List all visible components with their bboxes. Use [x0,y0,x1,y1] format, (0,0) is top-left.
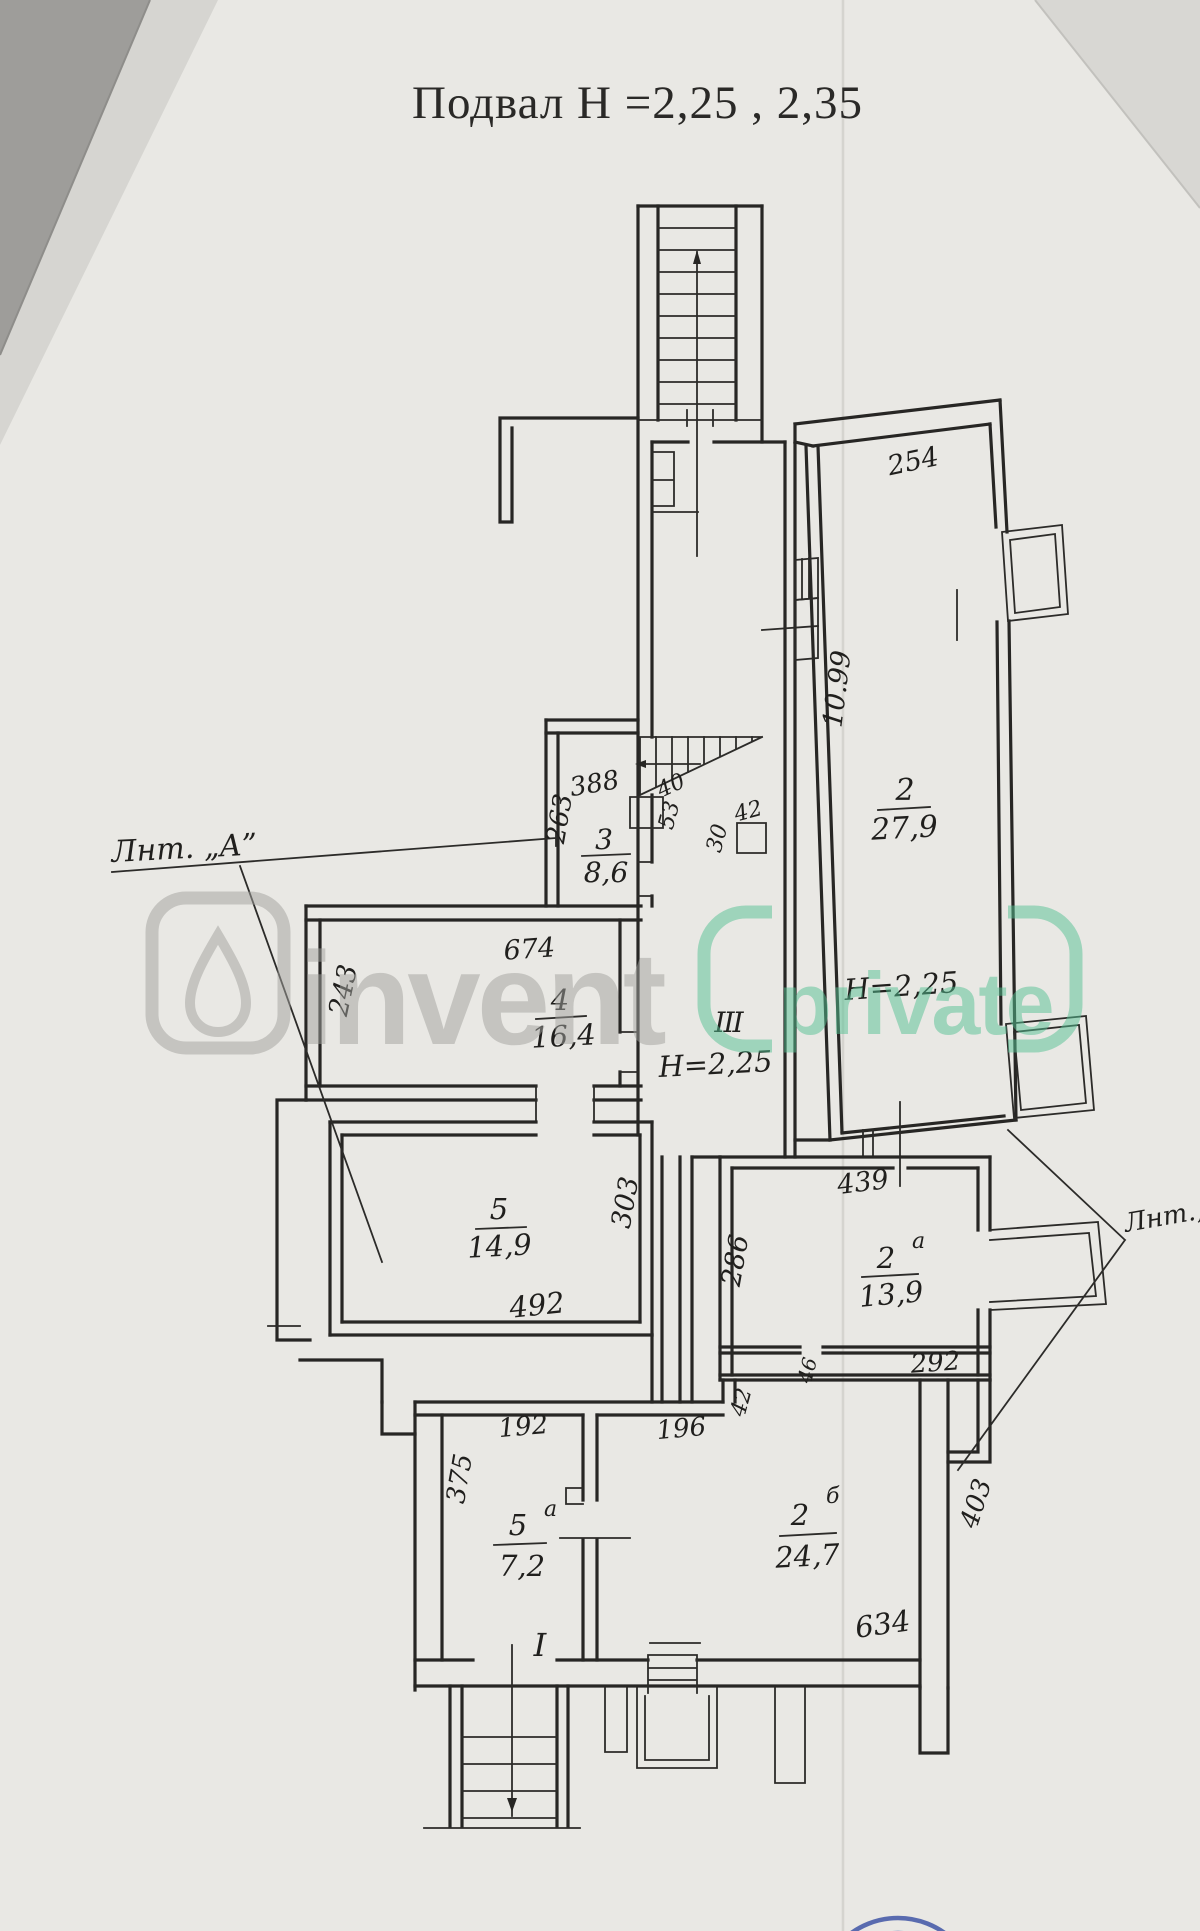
room2a-dim-top: 439 [835,1164,891,1201]
room5-dim-bottom: 492 [507,1285,567,1325]
room2b-suffix: б [826,1484,840,1509]
room2-area: 27,9 [869,809,939,848]
room2a-dim-bottom: 292 [909,1346,962,1379]
watermark-suffix: private [778,954,1053,1053]
floor-plan: Подвал Н =2,25 , 2,35 [0,0,1200,1931]
room2a-number: 2 [876,1241,895,1275]
scanned-floorplan-photo: Подвал Н =2,25 , 2,35 [0,0,1200,1931]
room2b-number: 2 [790,1498,809,1532]
room2a-suffix: а [912,1229,925,1254]
room2b-dim-top: 196 [655,1412,707,1446]
watermark-brand: invent [298,925,666,1072]
room5-area: 14,9 [466,1227,532,1264]
room5a-entry-mark: I [533,1626,548,1664]
room2-number: 2 [894,773,914,808]
room5a-suffix: а [544,1497,557,1522]
room3-number: 3 [595,823,613,856]
room2b-area: 24,7 [773,1537,841,1574]
plan-title: Подвал Н =2,25 , 2,35 [412,77,863,129]
room5a-number: 5 [509,1508,527,1542]
room3-area: 8,6 [584,856,629,889]
room5a-dim-top: 192 [497,1410,549,1444]
room5a-area: 7,2 [499,1549,545,1583]
room5-number: 5 [490,1192,508,1226]
room2a-area: 13,9 [857,1274,924,1313]
